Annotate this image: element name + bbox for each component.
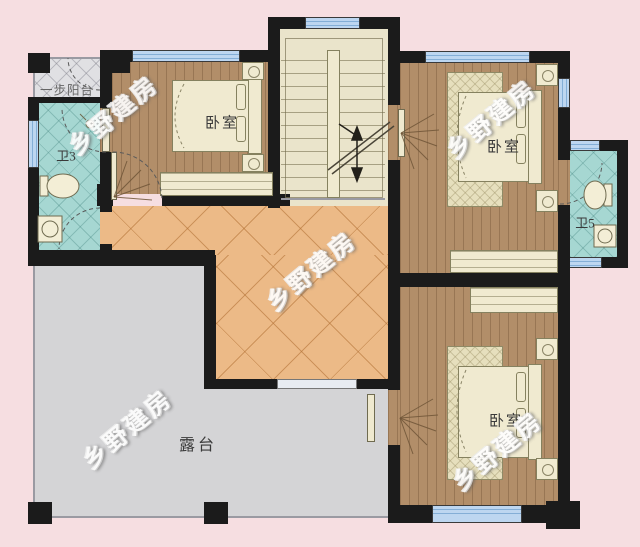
nightstand-br-2 xyxy=(536,458,558,480)
wall-tl-top-b xyxy=(240,50,270,62)
window-tl-bedroom xyxy=(132,50,240,62)
label-bath-right: 卫5 xyxy=(575,213,595,232)
nightstand-tl-1 xyxy=(242,62,264,80)
wall-east-upper-a xyxy=(558,51,570,78)
doorway-bath-right xyxy=(558,160,570,205)
doorway-bottom-right xyxy=(388,390,400,445)
window-br-bedroom xyxy=(432,505,522,523)
wardrobe-top-right xyxy=(450,250,558,273)
wall-east-lower xyxy=(558,257,570,507)
bathroom-right-floor xyxy=(570,151,617,257)
wall-east-upper-b xyxy=(558,108,570,141)
wall-bath-right-east xyxy=(617,140,628,268)
bed-bottom-right-pillow-1 xyxy=(516,372,526,402)
wall-terrace-south-b xyxy=(357,379,388,389)
nightstand-tr-2 xyxy=(536,190,558,212)
window-bath-right-bottom xyxy=(568,257,602,268)
wall-bath-left-outer-a xyxy=(28,100,39,120)
window-tr-bedroom-top xyxy=(425,51,530,63)
stair-threshold xyxy=(281,198,385,200)
nightstand-br-1 xyxy=(536,338,558,360)
wall-right-bedrooms-west-low xyxy=(388,445,400,507)
wall-terrace-east xyxy=(204,255,216,389)
wall-bedroom-separator xyxy=(388,273,570,287)
wardrobe-top-left xyxy=(160,172,273,196)
wardrobe-bottom-right xyxy=(470,287,558,313)
pillar-bottom-right-corner xyxy=(546,501,580,529)
wall-bath-right-west-b xyxy=(558,205,570,257)
label-bedroom-top-left: 卧室 xyxy=(205,112,239,133)
stair-stringer xyxy=(327,50,340,198)
door-leaf-br-bedroom xyxy=(367,394,375,442)
nightstand-tr-1 xyxy=(536,64,558,86)
window-tr-bedroom-east xyxy=(558,78,570,108)
door-leaf-tr-bedroom xyxy=(398,109,405,157)
wall-tr-top-a xyxy=(388,51,425,63)
terrace-floor-left xyxy=(33,266,204,518)
wall-bath-right-bottom-b xyxy=(602,257,628,268)
floor-plan: 一步阳台 卫3 卧室 卧室 卧室 卫5 露台 乡野建房 乡野建房 乡野建房 乡野… xyxy=(0,0,640,547)
wall-bath-right-west-a xyxy=(558,141,570,160)
terrace-floor-bottom xyxy=(204,389,390,518)
label-balcony: 一步阳台 xyxy=(40,80,94,99)
pillar-terrace-left xyxy=(28,502,52,524)
wall-bath-hall-stub-a xyxy=(100,206,112,212)
terrace-edge-left xyxy=(33,266,35,518)
pillar-balcony-left xyxy=(28,53,50,73)
wall-bath-left-outer-b xyxy=(28,168,39,258)
window-bath-left xyxy=(28,120,39,168)
sliding-door-terrace xyxy=(277,379,357,389)
bed-top-left-headboard xyxy=(248,78,262,154)
bed-top-left-pillow-1 xyxy=(236,84,246,110)
pillar-terrace-mid xyxy=(204,502,228,524)
nightstand-tl-2 xyxy=(242,154,264,172)
wall-terrace-south-a xyxy=(204,379,277,389)
wall-bottom-a xyxy=(388,505,432,523)
door-leaf-tl-bedroom xyxy=(111,152,117,200)
window-bath-right-top xyxy=(570,140,600,151)
window-stair-top xyxy=(305,17,360,29)
label-bedroom-top-right: 卧室 xyxy=(487,136,521,157)
wall-terrace-north xyxy=(28,250,215,266)
label-terrace: 露台 xyxy=(179,431,217,455)
